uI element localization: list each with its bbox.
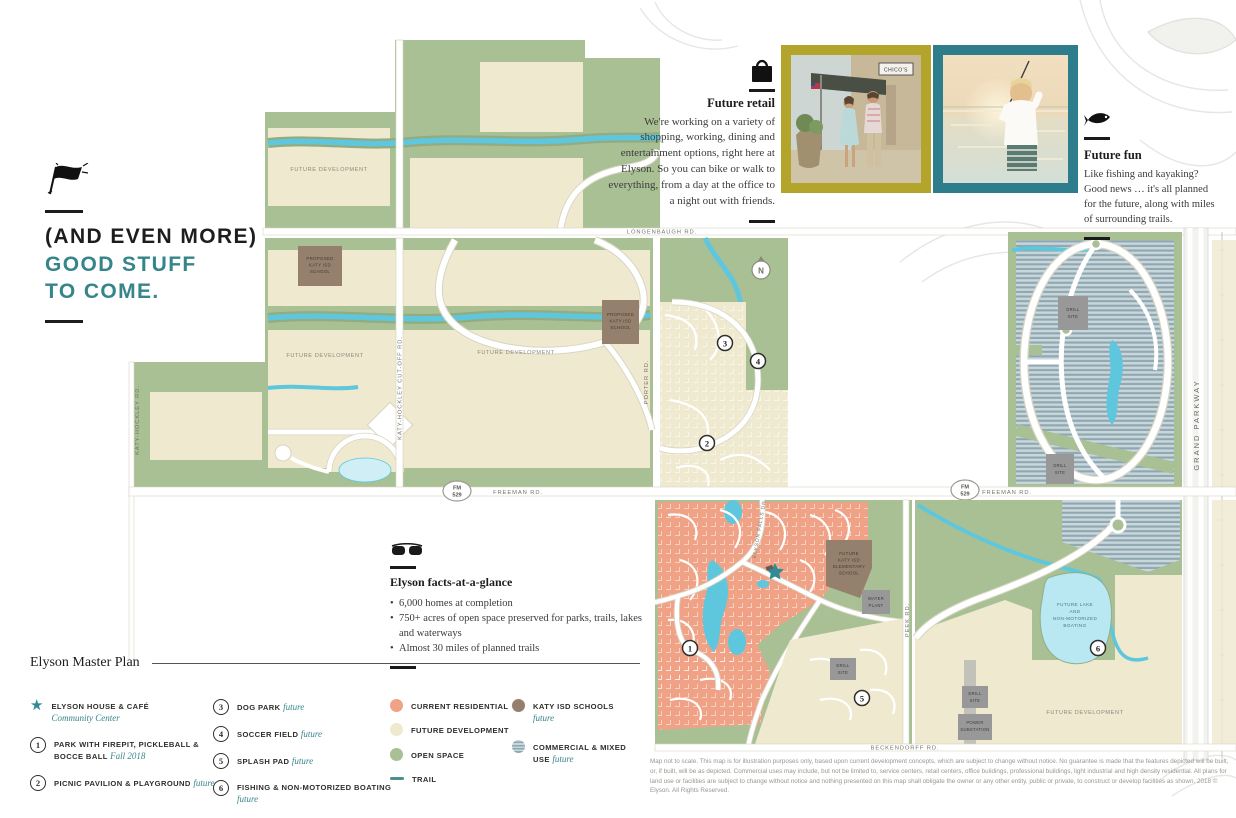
road-katy-hockley: KATY-HOCKLEY RD. — [129, 362, 141, 660]
school-label: SCHOOL — [310, 269, 331, 274]
svg-text:DRILL: DRILL — [1053, 463, 1067, 468]
sunglasses-icon — [390, 543, 424, 557]
icon-rule — [390, 566, 416, 569]
facts-block: Elyson facts-at-a-glance 6,000 homes at … — [390, 543, 642, 669]
legend-swatch-future-development: FUTURE DEVELOPMENT — [390, 723, 520, 736]
icon-rule — [749, 89, 775, 92]
legend-item-elyson-house: ★ ELYSON HOUSE & CAFÉ Community Center — [30, 699, 215, 726]
legend-sub: Community Center — [51, 712, 149, 726]
swatch-residential — [390, 699, 403, 712]
fm-529-shield-west: FM 529 — [443, 481, 471, 501]
future-retail-rule — [749, 220, 775, 223]
legend-item-3: 3 DOG PARK future — [213, 699, 398, 715]
legend-number-icon: 3 — [213, 699, 229, 715]
legend-column-1: ★ ELYSON HOUSE & CAFÉ Community Center 1… — [30, 699, 215, 802]
swatch-open-space — [390, 748, 403, 761]
legend-note: future — [193, 778, 214, 788]
map-panel-southeast: FUTURE LAKE AND NON-MOTORIZED BOATING 6 … — [915, 500, 1182, 744]
svg-text:ELEMENTARY: ELEMENTARY — [833, 564, 865, 569]
facts-list: 6,000 homes at completion 750+ acres of … — [390, 596, 642, 657]
svg-text:SUBSTATION: SUBSTATION — [960, 727, 989, 732]
road-label-peek: PEEK RD. — [905, 603, 911, 637]
road-label-longenbaugh: LONGENBAUGH RD. — [627, 230, 697, 236]
svg-text:529: 529 — [960, 492, 969, 498]
svg-text:SCHOOL: SCHOOL — [839, 571, 860, 576]
legend-swatch-commercial: COMMERCIAL & MIXED USE future — [512, 740, 637, 767]
legend-number-icon: 5 — [213, 753, 229, 769]
area-label-future-development: FUTURE DEVELOPMENT — [286, 353, 363, 359]
title-line-2: GOOD STUFF — [45, 253, 197, 276]
svg-text:BOATING: BOATING — [1063, 623, 1086, 628]
title-line-1: (AND EVEN MORE) — [45, 225, 257, 248]
swatch-trail — [390, 777, 404, 780]
legend-number-icon: 4 — [213, 726, 229, 742]
legend-item-5: 5 SPLASH PAD future — [213, 753, 398, 769]
headline-block: (AND EVEN MORE) GOOD STUFF TO COME. — [45, 163, 257, 333]
svg-text:529: 529 — [452, 493, 461, 499]
map-marker-4: 4 — [751, 354, 766, 369]
headline-rule-bottom — [45, 320, 83, 323]
swatch-katy-isd — [512, 699, 525, 712]
map-marker-2: 2 — [700, 436, 715, 451]
photo-couple-scene: CHICO'S — [791, 55, 921, 183]
school-label: KATY ISD — [609, 319, 631, 324]
map-marker-6: 6 — [1091, 641, 1106, 656]
fact-item: 6,000 homes at completion — [390, 596, 642, 611]
svg-text:3: 3 — [723, 339, 727, 349]
legend-item-2: 2 PICNIC PAVILION & PLAYGROUND future — [30, 775, 215, 791]
road-label-beckendorff: BECKENDORFF RD. — [871, 746, 940, 752]
drill-site-ne-2: DRILL SITE — [1046, 454, 1074, 484]
road-label-freeman-west: FREEMAN RD. — [493, 490, 543, 496]
legend-number-icon: 6 — [213, 780, 229, 796]
future-fun-block: Future fun Like fishing and kayaking? Go… — [1084, 108, 1216, 240]
photo-boy-fishing — [933, 45, 1078, 193]
map-marker-1: 1 — [683, 641, 698, 656]
fish-icon — [1084, 108, 1112, 128]
svg-text:AND: AND — [1070, 609, 1081, 614]
map-marker-3: 3 — [718, 336, 733, 351]
brochure-page: { "headline": { "line1": "(AND EVEN MORE… — [0, 0, 1236, 800]
svg-text:DRILL: DRILL — [968, 691, 982, 696]
svg-text:WATER: WATER — [868, 596, 884, 601]
legend-swatch-katy-isd: KATY ISD SCHOOLS future — [512, 699, 637, 726]
map-panel-residential: FUTURE KATY ISD ELEMENTARY SCHOOL WATER … — [655, 498, 912, 748]
legend-note: future — [301, 729, 322, 739]
svg-text:DRILL: DRILL — [836, 663, 850, 668]
legend-title: Elyson Master Plan — [30, 655, 140, 671]
road-beckendorff: BECKENDORFF RD. — [655, 744, 1236, 752]
svg-text:1: 1 — [688, 644, 692, 654]
svg-text:KATY ISD: KATY ISD — [838, 558, 860, 563]
flag-icon — [45, 163, 91, 195]
headline-rule-top — [45, 210, 83, 213]
photo-couple-shopping: CHICO'S — [781, 45, 931, 193]
proposed-katy-isd-school-2: PROPOSED KATY ISD SCHOOL — [602, 300, 639, 344]
swatch-commercial — [512, 740, 525, 753]
swatch-development — [390, 723, 403, 736]
page-title: (AND EVEN MORE) GOOD STUFF TO COME. — [45, 223, 257, 306]
svg-text:SITE: SITE — [1068, 314, 1079, 319]
map-panel-northeast-commercial: DRILL SITE DRILL SITE — [1008, 232, 1182, 490]
road-label-freeman-east: FREEMAN RD. — [982, 490, 1032, 496]
future-retail-body: We're working on a variety of shopping, … — [605, 115, 775, 211]
map-marker-5: 5 — [855, 691, 870, 706]
legend-block: Elyson Master Plan ★ ELYSON HOUSE & CAFÉ… — [30, 655, 640, 781]
compass-letter: N — [758, 267, 764, 276]
svg-text:NON-MOTORIZED: NON-MOTORIZED — [1053, 616, 1098, 621]
legend-label: PICNIC PAVILION & PLAYGROUND — [54, 779, 191, 788]
future-fun-body: Like fishing and kayaking? Good news … i… — [1084, 167, 1216, 228]
road-label-katy-hockley-cutoff: KATY-HOCKLEY CUT-OFF RD. — [398, 336, 404, 440]
legend-label: SOCCER FIELD — [237, 730, 298, 739]
svg-text:5: 5 — [860, 694, 864, 704]
svg-text:FM: FM — [961, 485, 969, 491]
legend-column-3: CURRENT RESIDENTIAL FUTURE DEVELOPMENT O… — [390, 699, 520, 797]
future-retail-title: Future retail — [605, 96, 775, 111]
legend-number-icon: 2 — [30, 775, 46, 791]
road-label-porter: PORTER RD. — [644, 360, 650, 405]
map-panel-center: N 3 4 2 — [660, 238, 788, 492]
future-fun-title: Future fun — [1084, 148, 1216, 163]
map-panel-northwest: FUTURE DEVELOPMENT — [265, 40, 660, 232]
future-fun-rule — [1084, 237, 1110, 240]
future-retail-block: Future retail We're working on a variety… — [605, 55, 775, 223]
legend-column-2: 3 DOG PARK future 4 SOCCER FIELD future … — [213, 699, 398, 818]
road-label-grand-parkway: GRAND PARKWAY — [1192, 379, 1201, 470]
legend-label: FISHING & NON-MOTORIZED BOATING — [237, 783, 391, 792]
legend-label: ELYSON HOUSE & CAFÉ — [51, 702, 149, 711]
legend-column-4: KATY ISD SCHOOLS future COMMERCIAL & MIX… — [512, 699, 637, 778]
water-plant: WATER PLANT — [862, 590, 890, 614]
legend-note: future — [237, 794, 258, 804]
svg-text:6: 6 — [1096, 644, 1100, 654]
map-disclaimer: Map not to scale. This map is for illust… — [650, 757, 1230, 796]
area-label-future-development: FUTURE DEVELOPMENT — [290, 167, 367, 173]
area-label-future-development: FUTURE DEVELOPMENT — [1046, 710, 1123, 716]
school-label: PROPOSED — [306, 256, 333, 261]
svg-text:2: 2 — [705, 439, 709, 449]
drill-site-ne-1: DRILL SITE — [1058, 296, 1088, 330]
legend-swatch-trail: TRAIL — [390, 772, 520, 785]
facts-title: Elyson facts-at-a-glance — [390, 575, 642, 590]
legend-item-1: 1 PARK WITH FIREPIT, PICKLEBALL & BOCCE … — [30, 737, 215, 764]
school-label: KATY ISD — [309, 263, 331, 268]
fact-item: 750+ acres of open space preserved for p… — [390, 611, 642, 641]
road-label-katy-hockley: KATY-HOCKLEY RD. — [135, 385, 141, 455]
fm-529-shield-east: FM 529 — [951, 480, 979, 500]
svg-text:PLANT: PLANT — [869, 603, 884, 608]
svg-text:POWER: POWER — [966, 720, 983, 725]
svg-text:SITE: SITE — [838, 670, 849, 675]
legend-swatch-open-space: OPEN SPACE — [390, 748, 520, 761]
legend-divider — [152, 663, 640, 664]
legend-swatch-current-residential: CURRENT RESIDENTIAL — [390, 699, 520, 712]
legend-item-4: 4 SOCCER FIELD future — [213, 726, 398, 742]
star-icon: ★ — [30, 699, 43, 713]
shopping-bag-icon — [749, 55, 775, 85]
svg-text:SITE: SITE — [1055, 470, 1066, 475]
school-label: SCHOOL — [610, 325, 631, 330]
svg-text:FUTURE: FUTURE — [839, 551, 859, 556]
legend-item-6: 6 FISHING & NON-MOTORIZED BOATING future — [213, 780, 398, 807]
icon-rule — [1084, 137, 1110, 140]
area-label-future-development: FUTURE DEVELOPMENT — [477, 350, 554, 356]
shop-sign: CHICO'S — [884, 68, 908, 74]
school-label: PROPOSED — [607, 312, 634, 317]
legend-label: DOG PARK — [237, 703, 281, 712]
svg-text:SITE: SITE — [970, 698, 981, 703]
title-line-3: TO COME. — [45, 280, 160, 303]
legend-note: Fall 2018 — [110, 751, 145, 761]
legend-number-icon: 1 — [30, 737, 46, 753]
proposed-katy-isd-school-1: PROPOSED KATY ISD SCHOOL — [298, 246, 342, 286]
drill-site-se: DRILL SITE — [962, 686, 988, 708]
legend-label: SPLASH PAD — [237, 757, 289, 766]
drill-site-south-1: DRILL SITE — [830, 658, 856, 680]
legend-note: future — [283, 702, 304, 712]
svg-text:FM: FM — [453, 486, 461, 492]
svg-text:FUTURE LAKE: FUTURE LAKE — [1057, 602, 1093, 607]
svg-text:DRILL: DRILL — [1066, 307, 1080, 312]
legend-note: future — [292, 756, 313, 766]
power-substation: POWER SUBSTATION — [958, 714, 992, 740]
photo-fishing-scene — [943, 55, 1068, 183]
